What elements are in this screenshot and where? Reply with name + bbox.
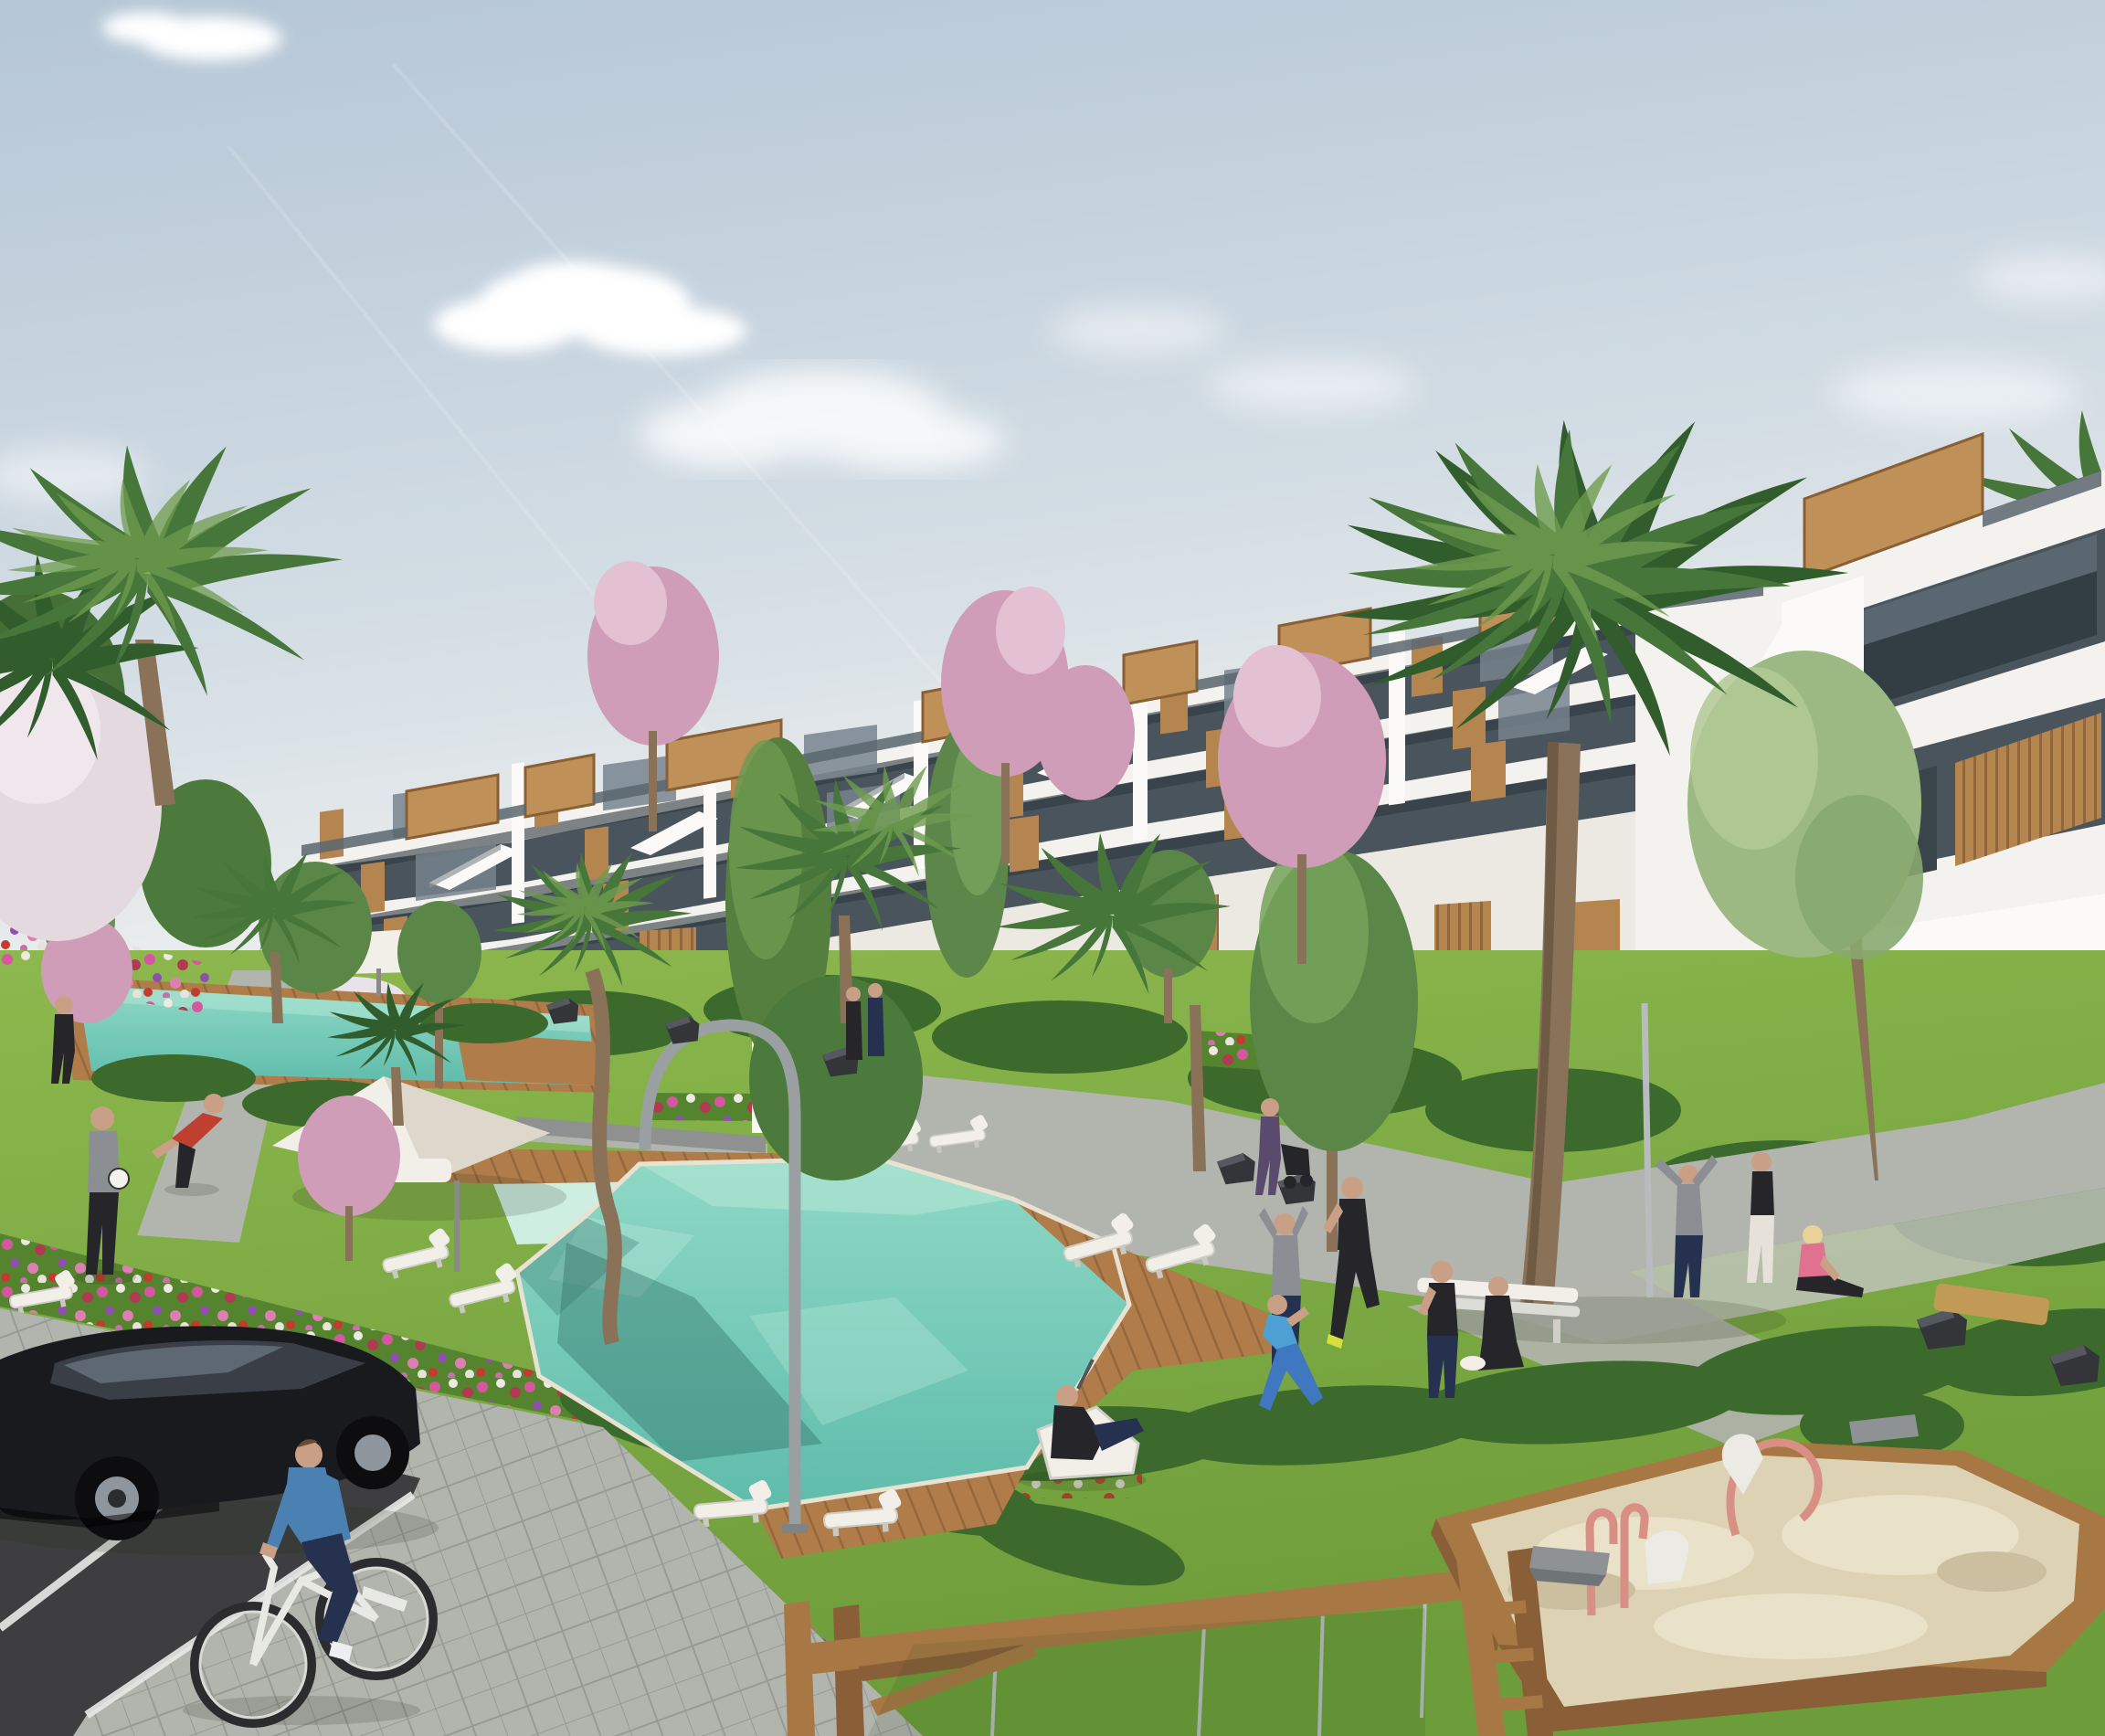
scene <box>0 0 2105 1736</box>
black-hatchback-car <box>0 1326 439 1555</box>
rendered-photo <box>0 0 2105 1736</box>
